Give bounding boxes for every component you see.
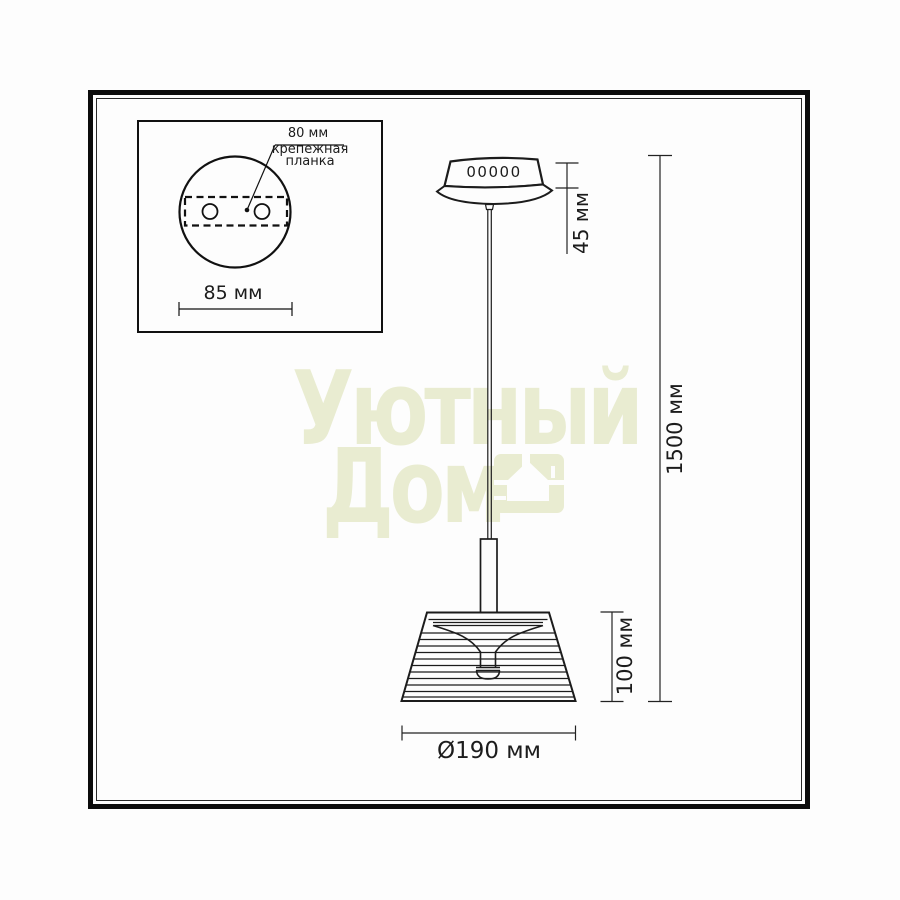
dimension-190mm-label: Ø190 мм	[399, 738, 579, 764]
suspension-wire	[488, 210, 492, 540]
lamp-technical-drawing	[0, 0, 900, 900]
plate-diameter-label: 85 мм	[193, 282, 273, 304]
mounting-plate-circle	[180, 157, 291, 268]
lampshade-drawing	[402, 613, 576, 702]
dimension-85mm-lines	[179, 302, 292, 316]
dimension-1500mm-label: 1500 мм	[663, 349, 687, 509]
dimension-45mm-label: 45 мм	[569, 163, 593, 283]
canopy-marking: 00000	[449, 163, 539, 181]
plate-width-label: 80 мм	[272, 126, 344, 141]
mounting-bar-label-line2: планка	[267, 156, 353, 168]
dimension-100mm-label: 100 мм	[613, 596, 637, 716]
stem-drawing	[481, 539, 498, 613]
diagram-canvas: Уютный Дом	[0, 0, 900, 900]
mounting-bar-label: крепежная планка	[267, 144, 353, 168]
